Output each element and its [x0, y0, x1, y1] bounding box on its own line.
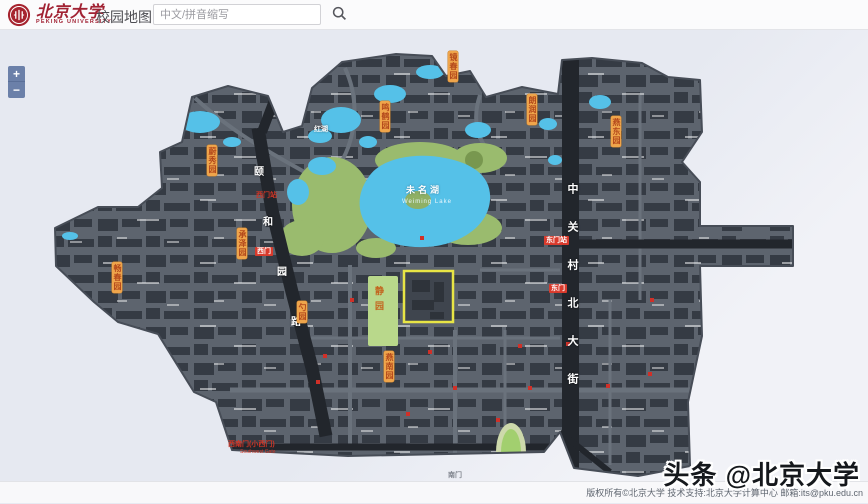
zoom-in-button[interactable]: +	[8, 66, 25, 82]
search-icon	[332, 6, 347, 21]
garden-label: 鸣鹤园	[380, 101, 390, 132]
campus-map-canvas[interactable]	[0, 30, 868, 481]
page-title: 校园地图	[96, 7, 152, 27]
search-input[interactable]	[153, 4, 321, 25]
road-label-yiheyuan-char: 和	[263, 218, 273, 228]
garden-label: 蔚秀园	[207, 145, 217, 176]
university-seal-icon	[7, 3, 31, 27]
east-gate-station-label: 东门站	[544, 236, 569, 245]
zoom-controls: + −	[8, 66, 25, 98]
red-lake-label: 红湖	[314, 126, 328, 133]
garden-label: 畅春园	[112, 262, 122, 293]
garden-label: 承泽园	[237, 228, 247, 259]
search-button[interactable]	[328, 4, 350, 26]
road-label-yiheyuan-char: 园	[277, 268, 287, 278]
road-label-zhongguancun: 中关村北大街	[566, 183, 577, 411]
map-viewport[interactable]: + − 未名湖 Weiming Lake 红湖 中关村北大街 颐 和 园 路 蔚…	[0, 30, 868, 481]
road-label-yiheyuan-char: 颐	[254, 168, 264, 178]
southwest-gate-label-en: Southwest Gate	[240, 450, 276, 455]
southwest-gate-label: 西南门(小西门)	[228, 441, 275, 448]
west-gate-station-label: 西门站	[256, 192, 277, 199]
toutiao-watermark: 头条 @北京大学	[663, 455, 860, 492]
garden-label: 燕南园	[384, 351, 394, 382]
zoom-out-button[interactable]: −	[8, 82, 25, 98]
weiming-lake-label-en: Weiming Lake	[402, 199, 452, 205]
jingyuan-lawn-label: 静园	[374, 286, 383, 316]
campus-area	[0, 30, 868, 481]
garden-label: 勺园	[297, 301, 307, 323]
garden-label: 燕东园	[611, 116, 621, 147]
weiming-lake-label-cn: 未名湖	[406, 186, 442, 195]
app-header: 北京大学 PEKING UNIVERSITY 校园地图	[0, 0, 868, 30]
garden-label: 镜春园	[448, 51, 458, 82]
highlighted-building-box[interactable]	[404, 271, 453, 322]
west-gate-label: 西门	[255, 247, 273, 256]
garden-label: 朗润园	[527, 94, 537, 125]
south-gate-label: 南门	[448, 472, 462, 479]
east-gate-label: 东门	[549, 284, 567, 293]
